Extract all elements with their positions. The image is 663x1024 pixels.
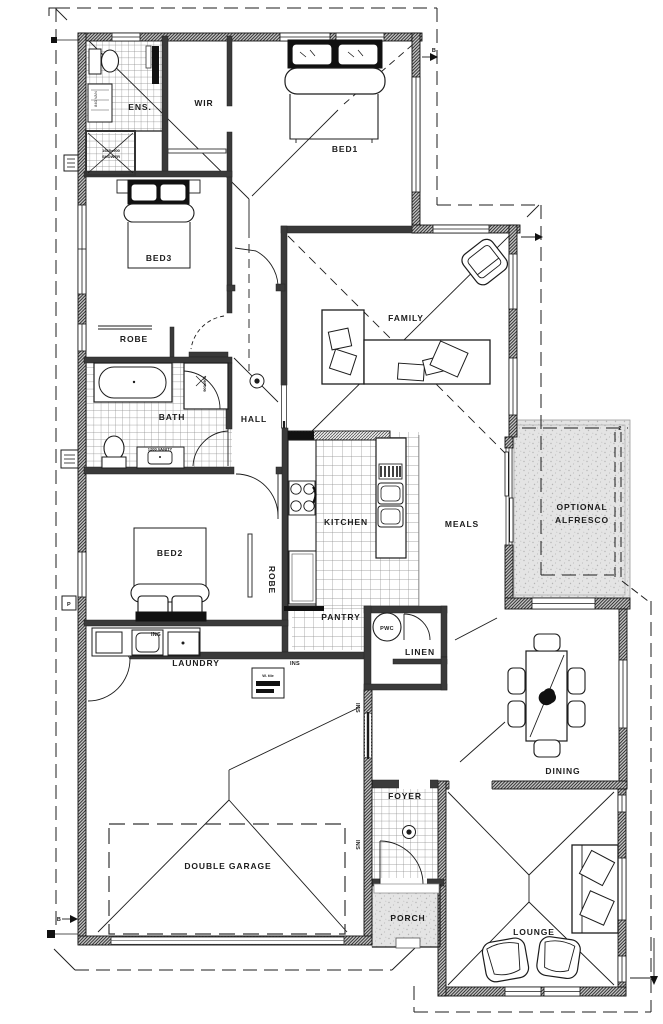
- svg-text:PANTRY: PANTRY: [321, 612, 360, 622]
- svg-text:INS: INS: [354, 840, 360, 850]
- svg-text:PORCH: PORCH: [390, 913, 425, 923]
- svg-text:PWC: PWC: [380, 626, 394, 632]
- svg-text:LOUNGE: LOUNGE: [513, 927, 555, 937]
- svg-text:W. tile: W. tile: [262, 673, 274, 678]
- svg-text:SHOWER: SHOWER: [102, 154, 120, 159]
- svg-text:BED1: BED1: [332, 144, 358, 154]
- svg-text:INS: INS: [354, 703, 360, 713]
- svg-text:INS: INS: [290, 661, 300, 667]
- svg-text:INS: INS: [151, 632, 161, 638]
- svg-text:1200 VANITY: 1200 VANITY: [148, 447, 173, 452]
- svg-text:DINING: DINING: [545, 766, 580, 776]
- svg-text:FOYER: FOYER: [388, 791, 422, 801]
- svg-text:WIR: WIR: [194, 98, 213, 108]
- svg-text:HALL: HALL: [241, 414, 267, 424]
- svg-text:LAUNDRY: LAUNDRY: [172, 658, 220, 668]
- svg-text:BED3: BED3: [146, 253, 172, 263]
- svg-text:840 VAN: 840 VAN: [93, 91, 98, 107]
- svg-text:B: B: [432, 48, 436, 54]
- svg-text:1665x900: 1665x900: [102, 148, 121, 153]
- svg-text:B: B: [57, 917, 61, 923]
- svg-text:P: P: [67, 602, 71, 608]
- svg-text:FAMILY: FAMILY: [388, 313, 424, 323]
- svg-text:2: 2: [618, 426, 621, 432]
- svg-text:KITCHEN: KITCHEN: [324, 517, 368, 527]
- svg-text:BED2: BED2: [157, 548, 183, 558]
- svg-text:ROBE: ROBE: [120, 334, 148, 344]
- svg-text:ALFRESCO: ALFRESCO: [555, 515, 609, 525]
- svg-text:LINEN: LINEN: [405, 647, 435, 657]
- svg-text:MEALS: MEALS: [445, 519, 479, 529]
- svg-text:ROBE: ROBE: [267, 566, 277, 594]
- svg-text:OPTIONAL: OPTIONAL: [556, 502, 607, 512]
- svg-text:BATH: BATH: [159, 412, 186, 422]
- svg-text:DOUBLE GARAGE: DOUBLE GARAGE: [184, 861, 271, 871]
- svg-text:ENS.: ENS.: [128, 102, 151, 112]
